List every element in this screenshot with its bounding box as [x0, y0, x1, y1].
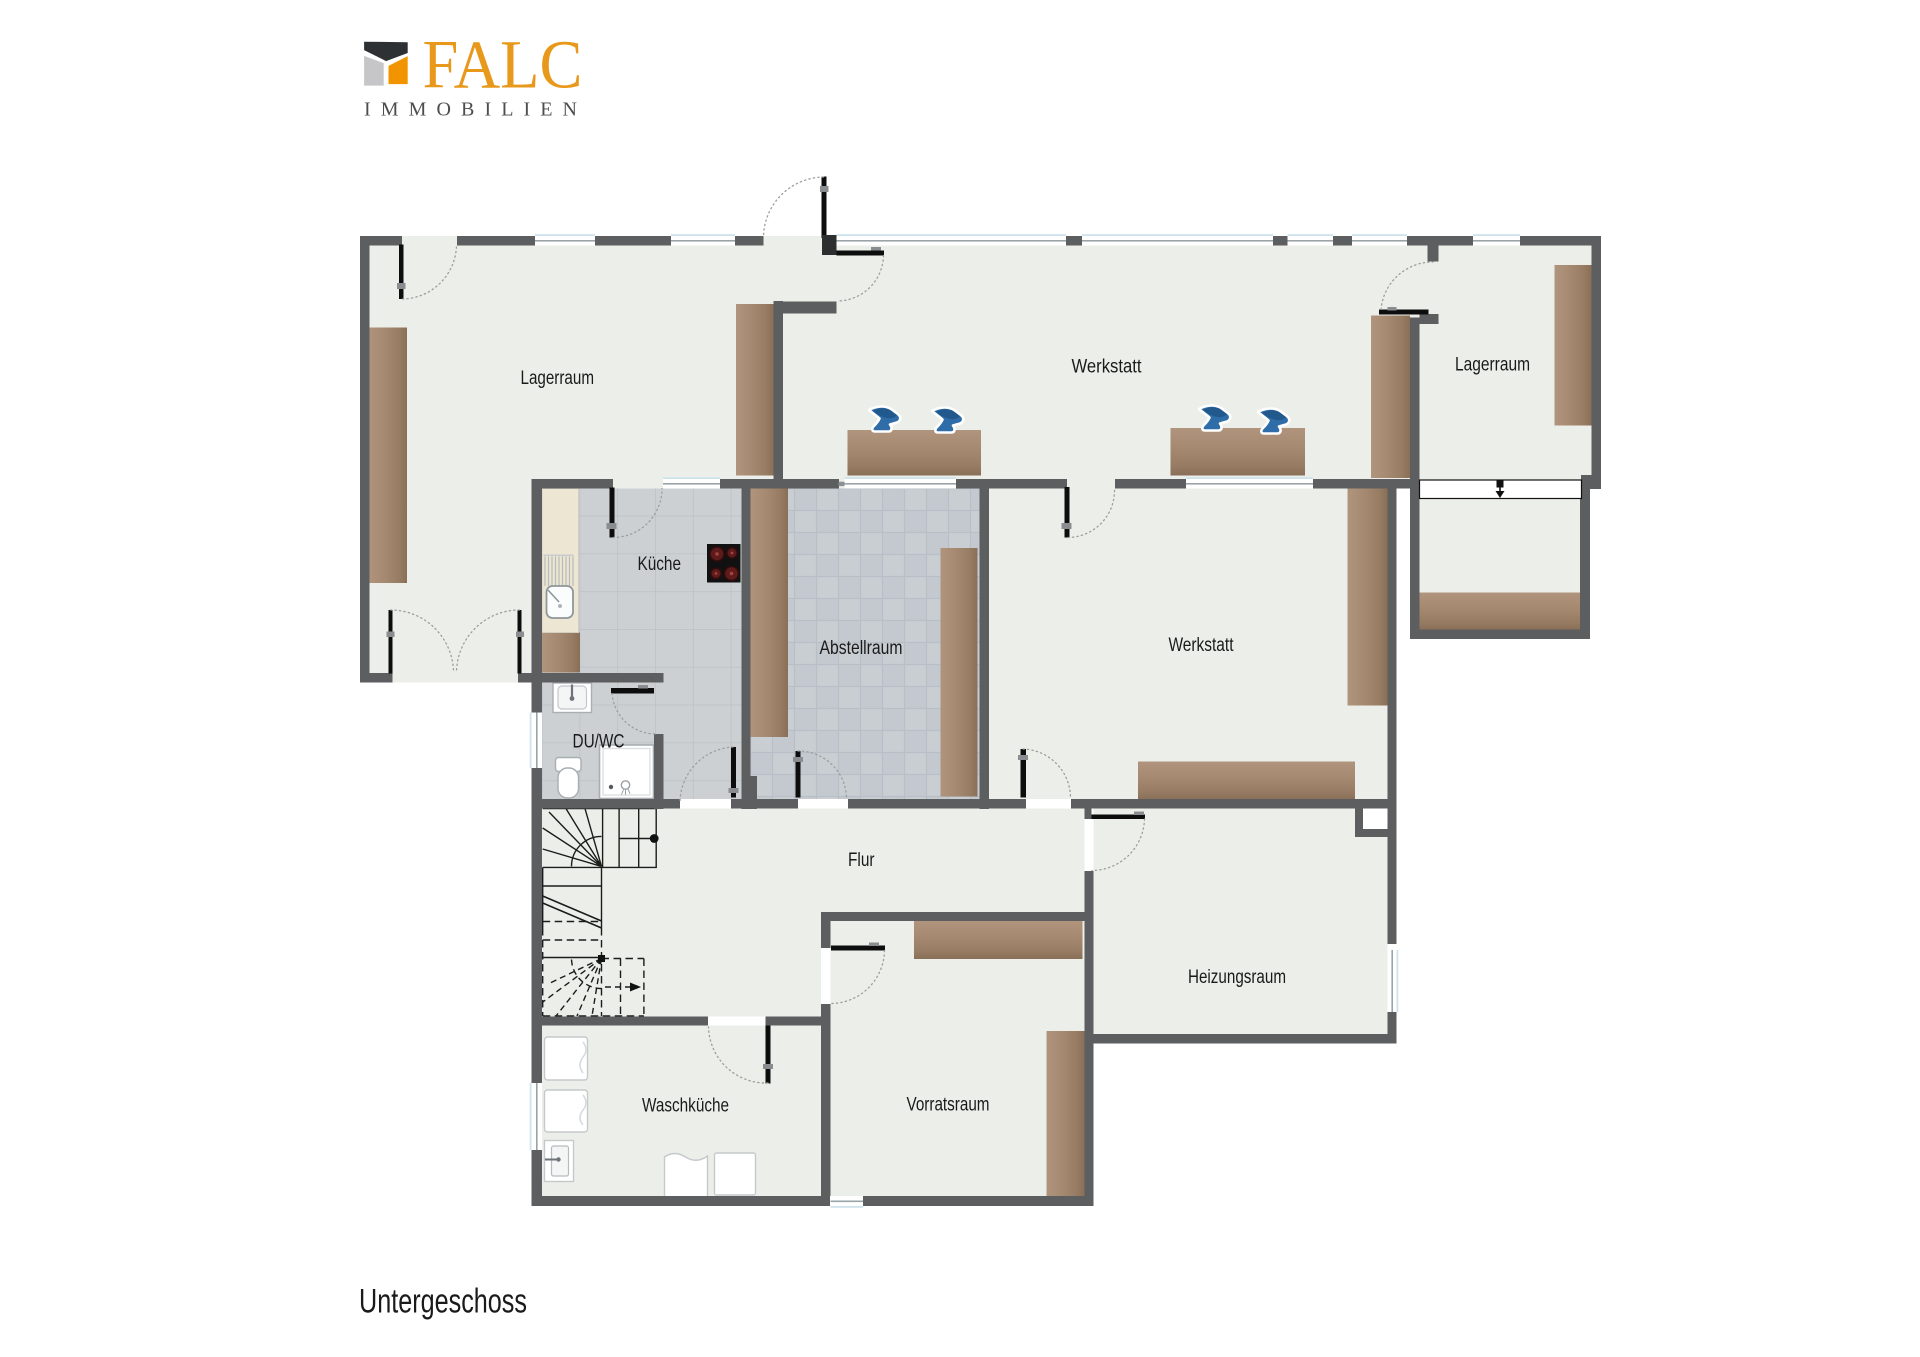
svg-text:Untergeschoss: Untergeschoss: [359, 1283, 527, 1321]
svg-text:Heizungsraum: Heizungsraum: [1188, 967, 1286, 988]
svg-text:Vorratsraum: Vorratsraum: [907, 1095, 990, 1116]
svg-text:Waschküche: Waschküche: [642, 1096, 729, 1117]
svg-text:Küche: Küche: [638, 554, 682, 575]
svg-text:IMMOBILIEN: IMMOBILIEN: [364, 99, 577, 121]
svg-text:Lagerraum: Lagerraum: [521, 368, 595, 389]
svg-text:Lagerraum: Lagerraum: [1455, 355, 1530, 376]
svg-text:Werkstatt: Werkstatt: [1169, 635, 1235, 656]
svg-text:Werkstatt: Werkstatt: [1072, 357, 1143, 378]
svg-text:DU/WC: DU/WC: [573, 732, 625, 753]
svg-text:Flur: Flur: [848, 850, 875, 871]
svg-text:Abstellraum: Abstellraum: [820, 638, 903, 659]
svg-text:FALC: FALC: [423, 27, 583, 103]
